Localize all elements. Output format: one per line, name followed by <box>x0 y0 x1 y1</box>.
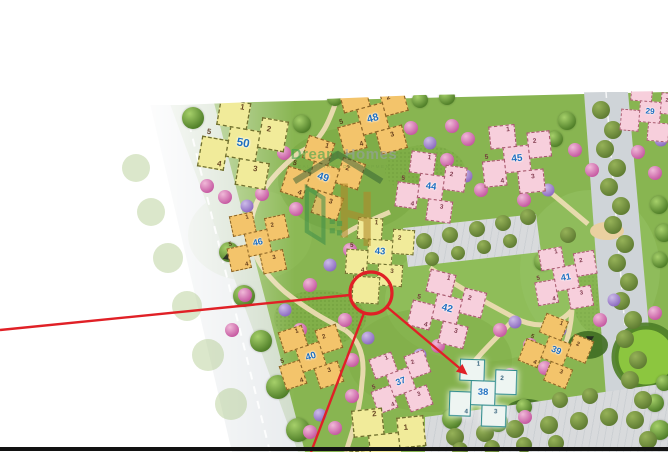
tree <box>608 254 626 272</box>
tree <box>182 107 204 129</box>
pink-flowering-tree <box>493 323 507 337</box>
unit-number: 4 <box>361 268 365 275</box>
tree <box>616 330 634 348</box>
unit-number: 4 <box>464 409 468 415</box>
tree <box>560 227 576 243</box>
tree <box>592 101 610 119</box>
building-wing <box>377 263 404 287</box>
pink-flowering-tree <box>338 313 352 327</box>
building-41: 1234541 <box>529 241 603 315</box>
unit-number: 2 <box>500 376 504 382</box>
tree <box>250 330 272 352</box>
building-wing <box>538 246 565 271</box>
tree <box>520 209 536 225</box>
building-38: 123438 <box>448 358 518 428</box>
tree <box>425 252 439 266</box>
tree <box>503 234 517 248</box>
pink-flowering-tree <box>218 190 232 204</box>
tree <box>451 246 465 260</box>
building-46: 1234546 <box>220 205 296 281</box>
faded-tree <box>122 154 150 182</box>
tree <box>416 233 432 249</box>
pink-flowering-tree <box>303 278 317 292</box>
building-39: 1234539 <box>514 309 597 392</box>
building-wing <box>488 124 517 150</box>
tree <box>652 252 668 268</box>
building-45: 1234545 <box>478 120 555 197</box>
watermark-logo: Dream Homes REAL ESTATE DEVELOPMENT <box>286 146 402 169</box>
pink-flowering-tree <box>345 389 359 403</box>
tree <box>626 411 644 429</box>
tree <box>608 159 626 177</box>
unit-number: 2 <box>398 235 402 242</box>
tree <box>293 115 311 133</box>
pink-flowering-tree <box>200 179 214 193</box>
tree <box>621 371 639 389</box>
pink-flowering-tree <box>631 145 645 159</box>
building-wing <box>647 122 668 143</box>
unit-number: 4 <box>500 178 504 185</box>
tree <box>552 392 568 408</box>
tree <box>634 391 652 409</box>
purple-flowering-tree <box>279 304 292 317</box>
building-wing <box>425 198 453 223</box>
building-wing <box>396 415 426 449</box>
building-edge: 21 <box>339 403 430 452</box>
unit-number: 3 <box>494 409 498 415</box>
unit-number: 3 <box>531 174 535 181</box>
unit-number: 1 <box>477 361 481 367</box>
building-wing <box>409 150 437 175</box>
master-plan-image: 1234550123454812345491234544123454512291… <box>0 0 668 452</box>
tree <box>616 235 634 253</box>
pink-flowering-tree <box>593 313 607 327</box>
tree <box>624 311 642 329</box>
faded-tree <box>137 198 165 226</box>
tree <box>582 388 598 404</box>
faded-tree <box>153 243 183 273</box>
bottom-border-bar <box>0 447 668 451</box>
faded-tree <box>192 339 224 371</box>
building-44: 1234544 <box>393 149 469 225</box>
building-wing <box>234 158 269 190</box>
faded-tree <box>172 291 202 321</box>
building-wing <box>351 275 380 304</box>
pink-flowering-tree <box>648 166 662 180</box>
pink-flowering-tree <box>238 288 252 302</box>
unit-number: 1 <box>403 424 408 432</box>
pink-flowering-tree <box>568 143 582 157</box>
tree <box>656 375 668 391</box>
pink-flowering-tree <box>445 119 459 133</box>
building-wing <box>351 407 385 437</box>
building-50: 1234550 <box>195 96 291 192</box>
tree <box>442 227 458 243</box>
tree <box>469 221 485 237</box>
pink-flowering-tree <box>303 425 317 439</box>
unit-number: 2 <box>372 411 377 419</box>
tree <box>477 240 491 254</box>
building-wing <box>425 269 456 298</box>
building-wing <box>517 168 546 194</box>
tree <box>600 178 618 196</box>
building-wing <box>259 249 287 275</box>
tree <box>558 112 576 130</box>
building-wing <box>459 359 485 382</box>
pink-flowering-tree <box>585 163 599 177</box>
unit-number: 3 <box>390 269 394 276</box>
tree <box>600 408 618 426</box>
purple-flowering-tree <box>509 316 522 329</box>
tree <box>655 224 668 242</box>
pink-flowering-tree <box>517 193 531 207</box>
building-42: 1234542 <box>404 266 489 351</box>
tree <box>604 216 622 234</box>
purple-flowering-tree <box>324 259 337 272</box>
tree <box>540 416 558 434</box>
tree <box>650 196 668 214</box>
pink-flowering-tree <box>648 306 662 320</box>
tree <box>620 273 638 291</box>
tree <box>629 351 647 369</box>
pink-flowering-tree <box>225 323 239 337</box>
tree <box>596 140 614 158</box>
tree <box>495 215 511 231</box>
purple-flowering-tree <box>608 294 621 307</box>
building-wing <box>567 285 594 310</box>
building-wing <box>543 361 573 389</box>
purple-flowering-tree <box>424 137 437 150</box>
pink-flowering-tree <box>518 410 532 424</box>
building-wing <box>481 405 507 428</box>
tree <box>612 197 630 215</box>
unit-number: 2 <box>533 138 537 145</box>
purple-flowering-tree <box>314 409 327 422</box>
dh-house-logo-icon <box>286 146 390 250</box>
pink-flowering-tree <box>461 132 475 146</box>
unit-number: 1 <box>506 127 510 134</box>
building-wing <box>539 313 569 341</box>
tree <box>570 412 588 430</box>
purple-flowering-tree <box>362 332 375 345</box>
faded-tree <box>215 388 247 420</box>
